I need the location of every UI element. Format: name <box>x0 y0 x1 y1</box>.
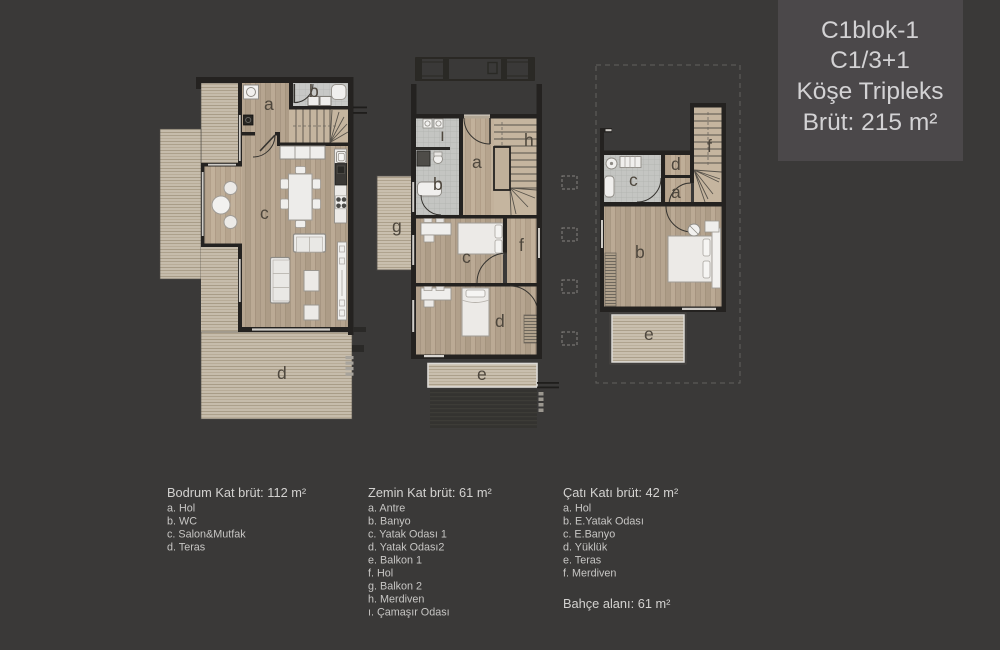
svg-text:e. Balkon 1: e. Balkon 1 <box>368 555 422 567</box>
svg-text:c. E.Banyo: c. E.Banyo <box>563 529 615 541</box>
svg-text:f: f <box>707 136 712 156</box>
svg-text:a: a <box>264 94 274 114</box>
svg-text:Köşe Tripleks: Köşe Tripleks <box>796 78 943 105</box>
svg-text:a: a <box>472 152 482 172</box>
svg-text:e: e <box>644 324 654 344</box>
svg-text:f: f <box>519 235 524 255</box>
svg-text:Brüt: 215 m²: Brüt: 215 m² <box>803 109 938 136</box>
svg-text:a. Hol: a. Hol <box>563 503 591 515</box>
svg-text:C1blok-1: C1blok-1 <box>821 17 919 44</box>
svg-text:b. Banyo: b. Banyo <box>368 516 411 528</box>
svg-text:f. Hol: f. Hol <box>368 568 393 580</box>
svg-text:c. Yatak Odası 1: c. Yatak Odası 1 <box>368 529 447 541</box>
svg-text:h: h <box>524 130 534 150</box>
svg-text:a. Antre: a. Antre <box>368 503 405 515</box>
svg-text:d: d <box>277 363 287 383</box>
svg-text:f. Merdiven: f. Merdiven <box>563 568 616 580</box>
svg-text:e. Teras: e. Teras <box>563 555 602 567</box>
svg-text:c. Salon&Mutfak: c. Salon&Mutfak <box>167 529 246 541</box>
svg-text:d: d <box>671 154 681 174</box>
svg-text:e: e <box>477 364 487 384</box>
svg-text:ı: ı <box>440 125 445 145</box>
svg-text:h. Merdiven: h. Merdiven <box>368 594 424 606</box>
svg-text:d: d <box>495 311 505 331</box>
svg-text:a. Hol: a. Hol <box>167 503 195 515</box>
svg-text:C1/3+1: C1/3+1 <box>830 47 910 74</box>
svg-text:g: g <box>392 216 402 236</box>
svg-text:b. E.Yatak Odası: b. E.Yatak Odası <box>563 516 644 528</box>
svg-text:ı. Çamaşır Odası: ı. Çamaşır Odası <box>368 607 450 619</box>
svg-text:a: a <box>671 182 681 202</box>
svg-text:d. Yatak Odası2: d. Yatak Odası2 <box>368 542 444 554</box>
svg-text:c: c <box>260 203 269 223</box>
svg-text:g. Balkon 2: g. Balkon 2 <box>368 581 422 593</box>
svg-text:d. Teras: d. Teras <box>167 542 206 554</box>
svg-text:b: b <box>433 174 443 194</box>
svg-text:c: c <box>462 247 471 267</box>
svg-text:Zemin Kat brüt: 61 m²: Zemin Kat brüt: 61 m² <box>368 485 492 500</box>
svg-text:b. WC: b. WC <box>167 516 197 528</box>
svg-text:Bodrum Kat brüt: 112 m²: Bodrum Kat brüt: 112 m² <box>167 485 307 500</box>
svg-text:Çatı Katı brüt: 42 m²: Çatı Katı brüt: 42 m² <box>563 485 679 500</box>
svg-text:d. Yüklük: d. Yüklük <box>563 542 608 554</box>
svg-text:c: c <box>629 170 638 190</box>
svg-text:Bahçe alanı: 61 m²: Bahçe alanı: 61 m² <box>563 596 671 611</box>
svg-text:b: b <box>635 242 645 262</box>
svg-text:b: b <box>309 81 319 101</box>
